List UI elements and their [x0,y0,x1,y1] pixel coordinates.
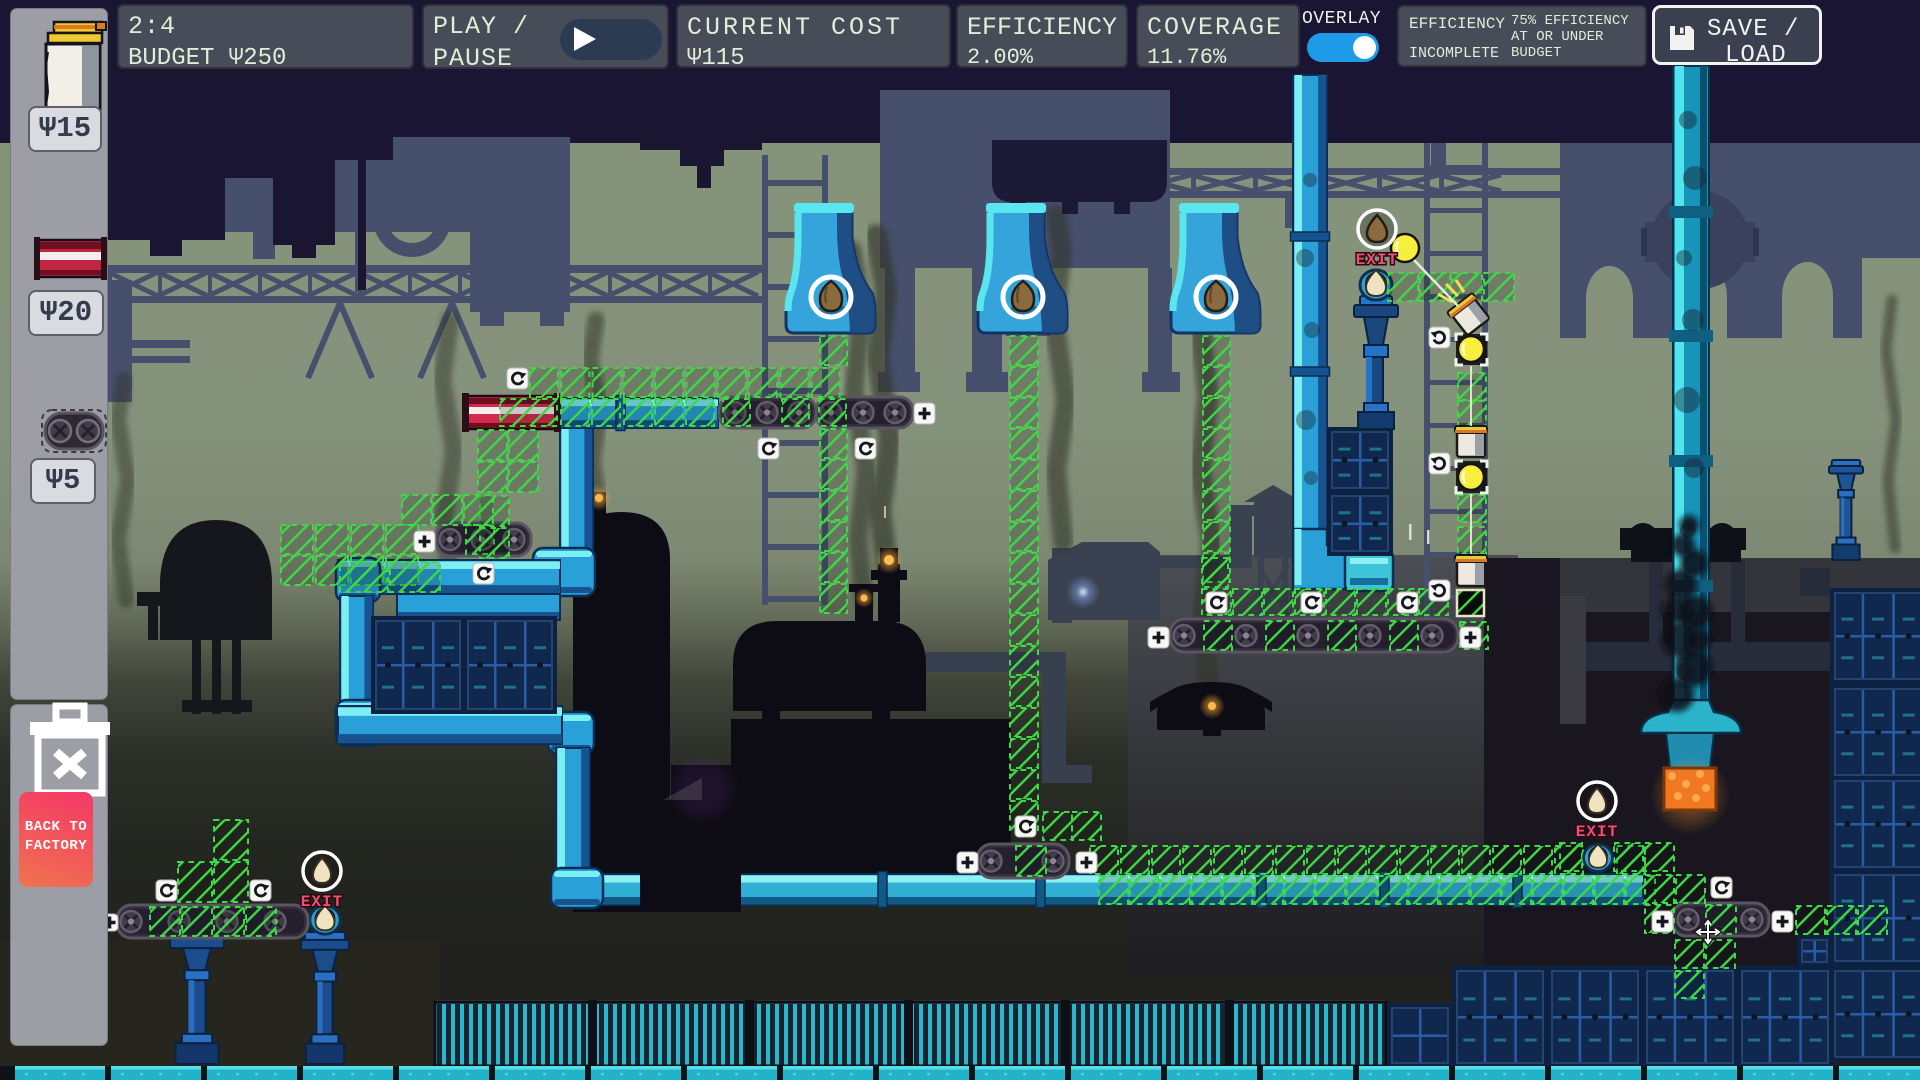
svg-text:EXIT: EXIT [301,893,343,911]
svg-text:EXIT: EXIT [1356,251,1398,269]
svg-text:EXIT: EXIT [1576,823,1618,841]
